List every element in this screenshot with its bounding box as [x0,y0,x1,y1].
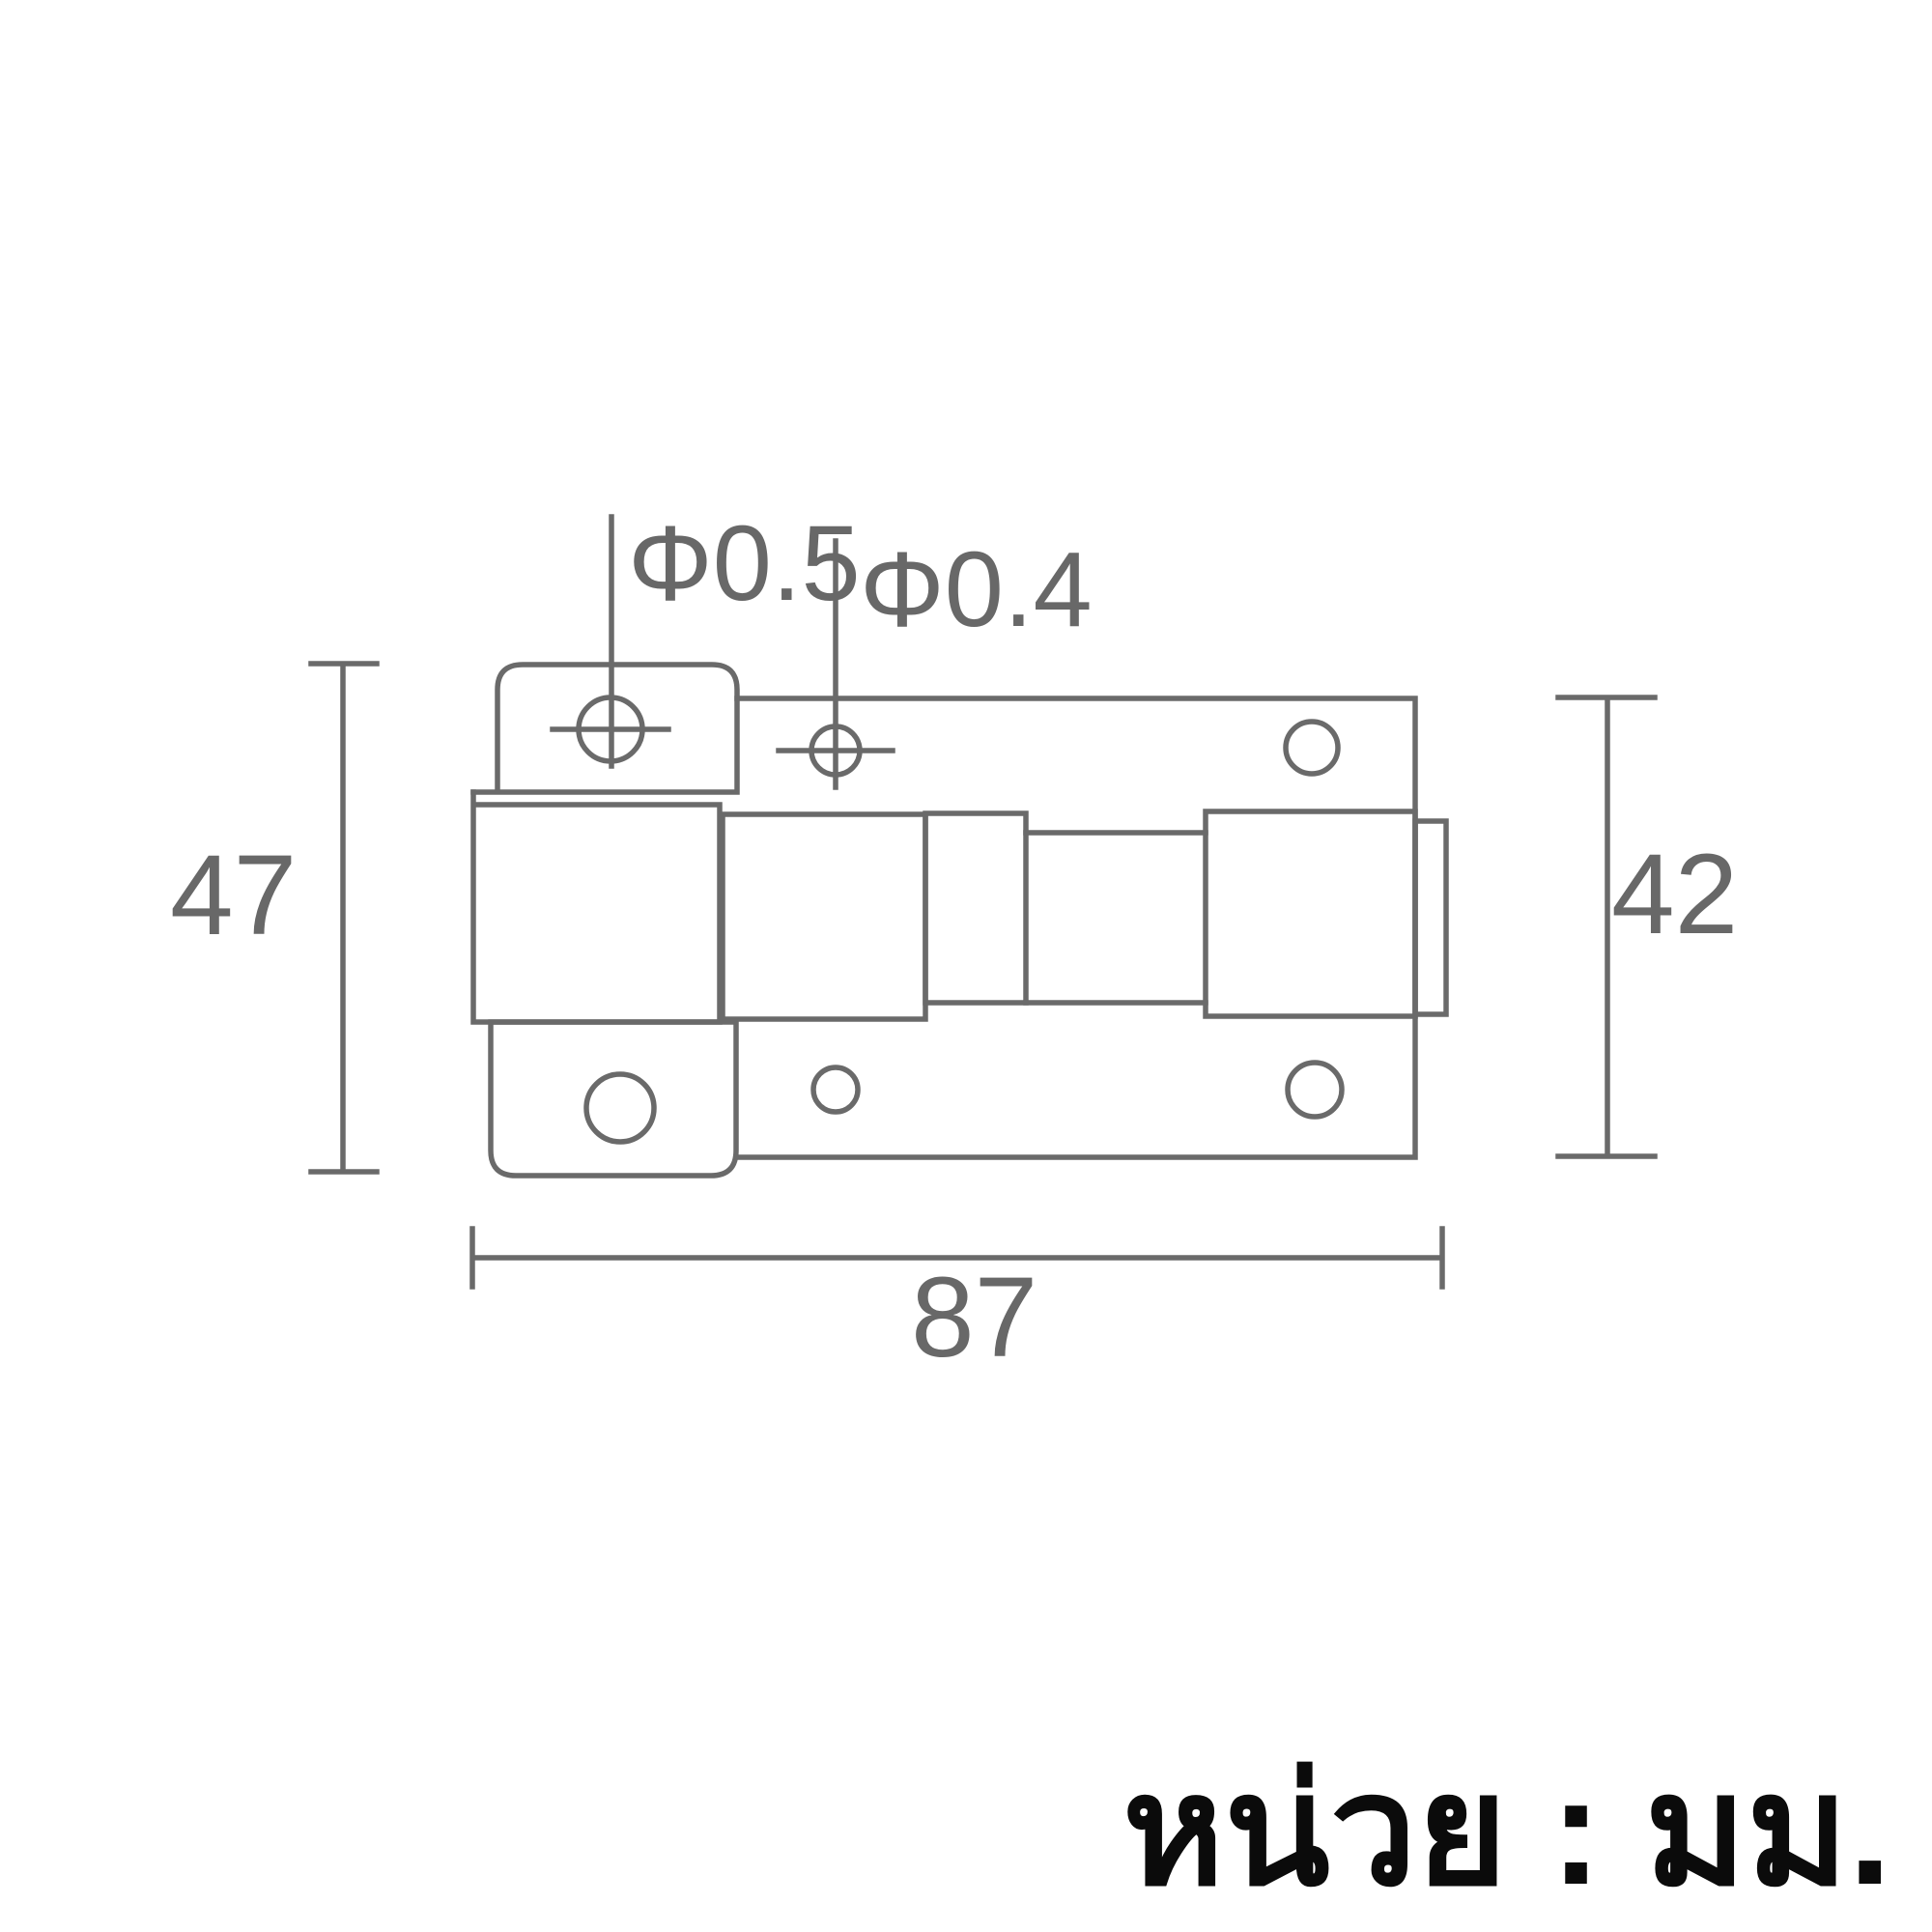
dim-label-hole-large: Φ0.5 [628,504,861,623]
dim-label-overall-width: 87 [911,1254,1037,1381]
unit-note-text: หน่วย : มม. [1122,1744,1891,1917]
drawing-canvas: Φ0.5 Φ0.4 47 42 87 หน่วย : มม. [0,0,1932,1932]
bolt-guide-block [925,813,1026,1003]
bottom-tab [491,1022,736,1176]
technical-drawing: Φ0.5 Φ0.4 47 42 87 หน่วย : มม. [0,0,1932,1932]
screw-hole-bottom-right [1288,1063,1342,1117]
latch-block [1206,811,1415,1016]
dim-label-hole-small: Φ0.4 [860,530,1093,649]
screw-hole-top-right [1286,722,1338,774]
dim-label-right-height: 42 [1611,831,1738,958]
dim-label-left-height: 47 [170,832,297,959]
bolt-end-cap [1415,821,1446,1014]
left-body-block [473,792,720,1022]
screw-hole-bottom-left [586,1074,654,1142]
dim-line-left-height [311,664,377,1172]
bolt-shaft [1026,833,1206,1003]
screw-hole-bottom-middle [813,1067,858,1112]
slider-knob-block [723,814,925,1019]
